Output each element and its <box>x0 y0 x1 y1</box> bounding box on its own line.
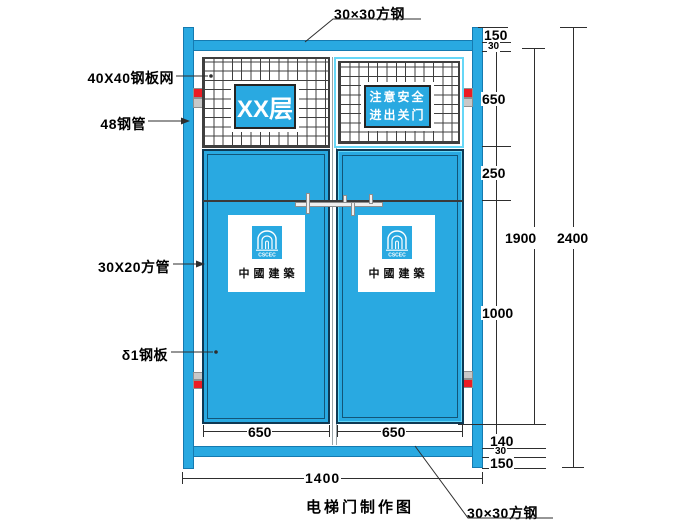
dim-line-2400 <box>573 249 574 467</box>
dim-tick <box>482 146 511 147</box>
cscec-logo-text: CSCEC <box>258 253 276 259</box>
latch-pin <box>343 195 347 203</box>
callout-square-tube: 30X20方管 <box>58 257 170 277</box>
safety-notice-line1: 注意安全 <box>369 89 425 106</box>
frame-rail-bottom <box>193 446 473 457</box>
dim-line-1900 <box>534 249 535 424</box>
dim-tick <box>182 472 183 484</box>
dim-right-door-width: 650 <box>381 425 406 439</box>
brand-sign-right: CSCEC 中國建築 <box>358 215 435 292</box>
cscec-logo-text: CSCEC <box>388 253 406 259</box>
dim-tick <box>458 424 546 425</box>
dim-tick <box>482 200 511 201</box>
callout-steel-mesh: 40X40钢板网 <box>58 68 174 88</box>
drawing-title: 电梯门制作图 <box>290 496 430 517</box>
callout-steel-plate: δ1钢板 <box>58 345 168 365</box>
elevator-door-fabrication-drawing: XX层 注意安全 进出关门 CSCEC 中國建築 <box>0 0 700 525</box>
dim-top-offset: 150 <box>483 28 508 42</box>
cscec-logo: CSCEC <box>382 226 412 259</box>
dim-lower-panel: 1000 <box>481 306 514 320</box>
dim-upper-panel: 250 <box>481 166 506 180</box>
safety-notice-sign: 注意安全 进出关门 <box>364 85 431 128</box>
callout-bottom-square-steel: 30×30方钢 <box>467 503 538 523</box>
latch-pin <box>351 202 355 216</box>
dim-tick <box>337 425 338 437</box>
floor-number-text: XX层 <box>237 89 293 124</box>
dim-left-door-width: 650 <box>247 425 272 439</box>
cscec-logo-icon: CSCEC <box>252 226 282 259</box>
cscec-logo-icon: CSCEC <box>382 226 412 259</box>
latch-pin <box>306 193 310 214</box>
safety-notice-line2: 进出关门 <box>369 107 425 124</box>
dim-total-width: 1400 <box>304 471 341 485</box>
dim-top-rail: 30 <box>487 42 500 52</box>
dim-tick <box>562 467 584 468</box>
dim-tick <box>462 425 463 437</box>
brand-sign-left: CSCEC 中國建築 <box>228 215 305 292</box>
dim-tick <box>329 425 330 437</box>
dim-line-2400 <box>573 27 574 227</box>
dim-tick <box>203 425 204 437</box>
latch-pin <box>369 194 373 204</box>
floor-number-sign: XX层 <box>234 84 296 129</box>
frame-rail-top <box>193 40 473 51</box>
dim-door-height: 1900 <box>504 231 537 245</box>
door-gap-line <box>332 57 333 445</box>
dim-mesh-height: 650 <box>481 92 506 106</box>
dim-total-height: 2400 <box>556 231 589 245</box>
callout-top-square-steel: 30×30方钢 <box>334 4 405 24</box>
brand-text: 中國建築 <box>369 265 429 281</box>
dim-tick <box>482 472 483 484</box>
cscec-logo: CSCEC <box>252 226 282 259</box>
brand-text: 中國建築 <box>239 265 299 281</box>
callout-steel-pipe: 48钢管 <box>58 114 146 134</box>
dim-bottom-offset: 150 <box>489 456 514 470</box>
dim-line-1900 <box>534 48 535 227</box>
